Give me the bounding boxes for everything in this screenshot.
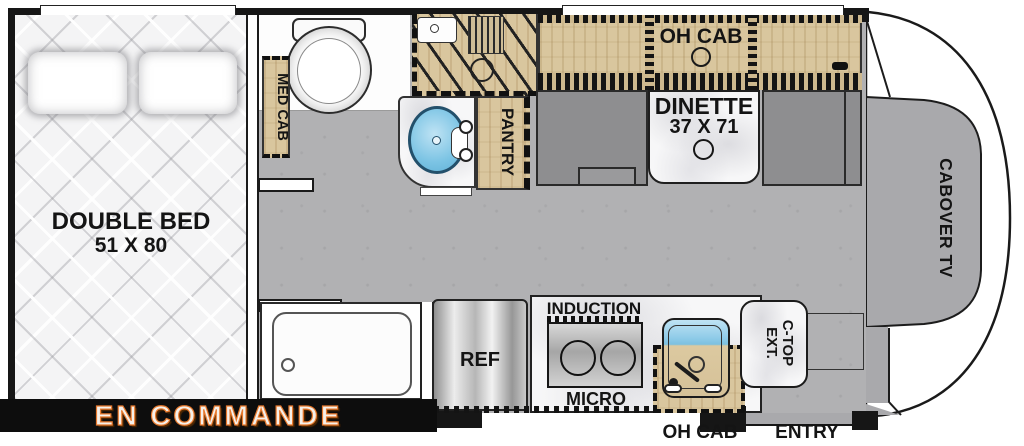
shower-drain: [281, 358, 295, 372]
oh-cab-front-hatch: [538, 73, 862, 90]
micro-label: MICRO: [546, 390, 646, 409]
pillow-left: [28, 52, 127, 114]
ctop-line1: C-TOP: [779, 320, 796, 366]
oh-cab-top-label: OH CAB: [646, 26, 756, 48]
status-banner: EN COMMANDE: [0, 399, 437, 432]
oh-cab-kitchen-label: OH CAB: [648, 423, 752, 443]
floorplan-canvas: DOUBLE BED 51 X 80 MED CAB PANTRY OH CAB…: [0, 0, 1024, 446]
wardrobe-water-heater: [470, 58, 494, 82]
cab-floor-connector: [866, 327, 888, 403]
bath-faucet-knob-top: [459, 120, 473, 134]
dinette-bench-right: [762, 90, 862, 186]
induction-burner-left: [560, 340, 596, 376]
ctop-extension-label: C-TOP EXT.: [753, 300, 795, 386]
entry-label: ENTRY: [752, 423, 862, 443]
pantry-label: PANTRY: [488, 97, 516, 187]
bed-label: DOUBLE BED: [20, 210, 242, 235]
med-cab-label: MED CAB: [263, 57, 289, 157]
dinette-bench-left-notch: [578, 167, 636, 186]
wardrobe-shelf-knob: [430, 24, 439, 33]
induction-burner-right: [600, 340, 636, 376]
oh-cab-latch: [832, 62, 848, 70]
dinette-bench-right-back: [844, 92, 846, 184]
cabover-tv-label: CABOVER TV: [919, 122, 955, 314]
oh-cab-top-hatch: [538, 15, 862, 23]
oh-cab-knob: [691, 47, 711, 67]
status-banner-text: EN COMMANDE: [95, 401, 343, 430]
wall-bath-stub: [258, 178, 314, 192]
ref-label: REF: [432, 350, 528, 371]
toilet-seat: [297, 38, 361, 104]
wall-bedroom-partition: [246, 15, 259, 400]
kitchen-faucet-right: [704, 384, 722, 393]
ctop-line2: EXT.: [763, 327, 780, 359]
bath-faucet-knob-bottom: [459, 148, 473, 162]
bed-size-label: 51 X 80: [20, 235, 242, 257]
wardrobe-vent-panel: [468, 16, 504, 54]
bath-sink-drain: [432, 136, 441, 145]
dinette-size-label: 37 X 71: [648, 117, 760, 138]
bath-counter-step: [420, 187, 472, 196]
kitchen-faucet-left: [664, 384, 682, 393]
pillow-right: [139, 52, 237, 114]
dinette-table-mount: [693, 139, 714, 160]
kitchen-sink-drain: [688, 356, 705, 373]
wall-left: [8, 8, 15, 432]
shower-pan: [272, 312, 412, 396]
